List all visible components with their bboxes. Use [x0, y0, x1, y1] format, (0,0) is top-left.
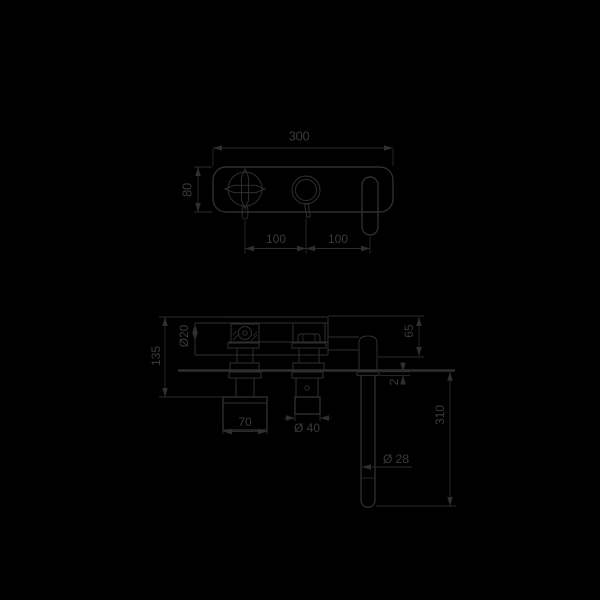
dim-2-label: 2	[387, 378, 401, 385]
dim-100-right-label: 100	[328, 232, 348, 246]
dim-28-label: Ø 28	[383, 452, 409, 466]
dim-40-label: Ø 40	[294, 421, 320, 435]
background	[0, 0, 600, 600]
faucet-technical-drawing: 300 80 100 100	[0, 0, 600, 600]
dim-100-left-label: 100	[266, 232, 286, 246]
dim-135-label: 135	[149, 346, 163, 366]
dim-20-label: Ø20	[177, 324, 191, 347]
dim-310-label: 310	[433, 405, 447, 425]
dim-300-label: 300	[289, 129, 310, 144]
dim-70-label: 70	[238, 415, 252, 429]
dim-65-label: 65	[402, 324, 416, 338]
technical-drawing-page: 300 80 100 100	[0, 0, 600, 600]
dim-80-label: 80	[180, 183, 195, 197]
